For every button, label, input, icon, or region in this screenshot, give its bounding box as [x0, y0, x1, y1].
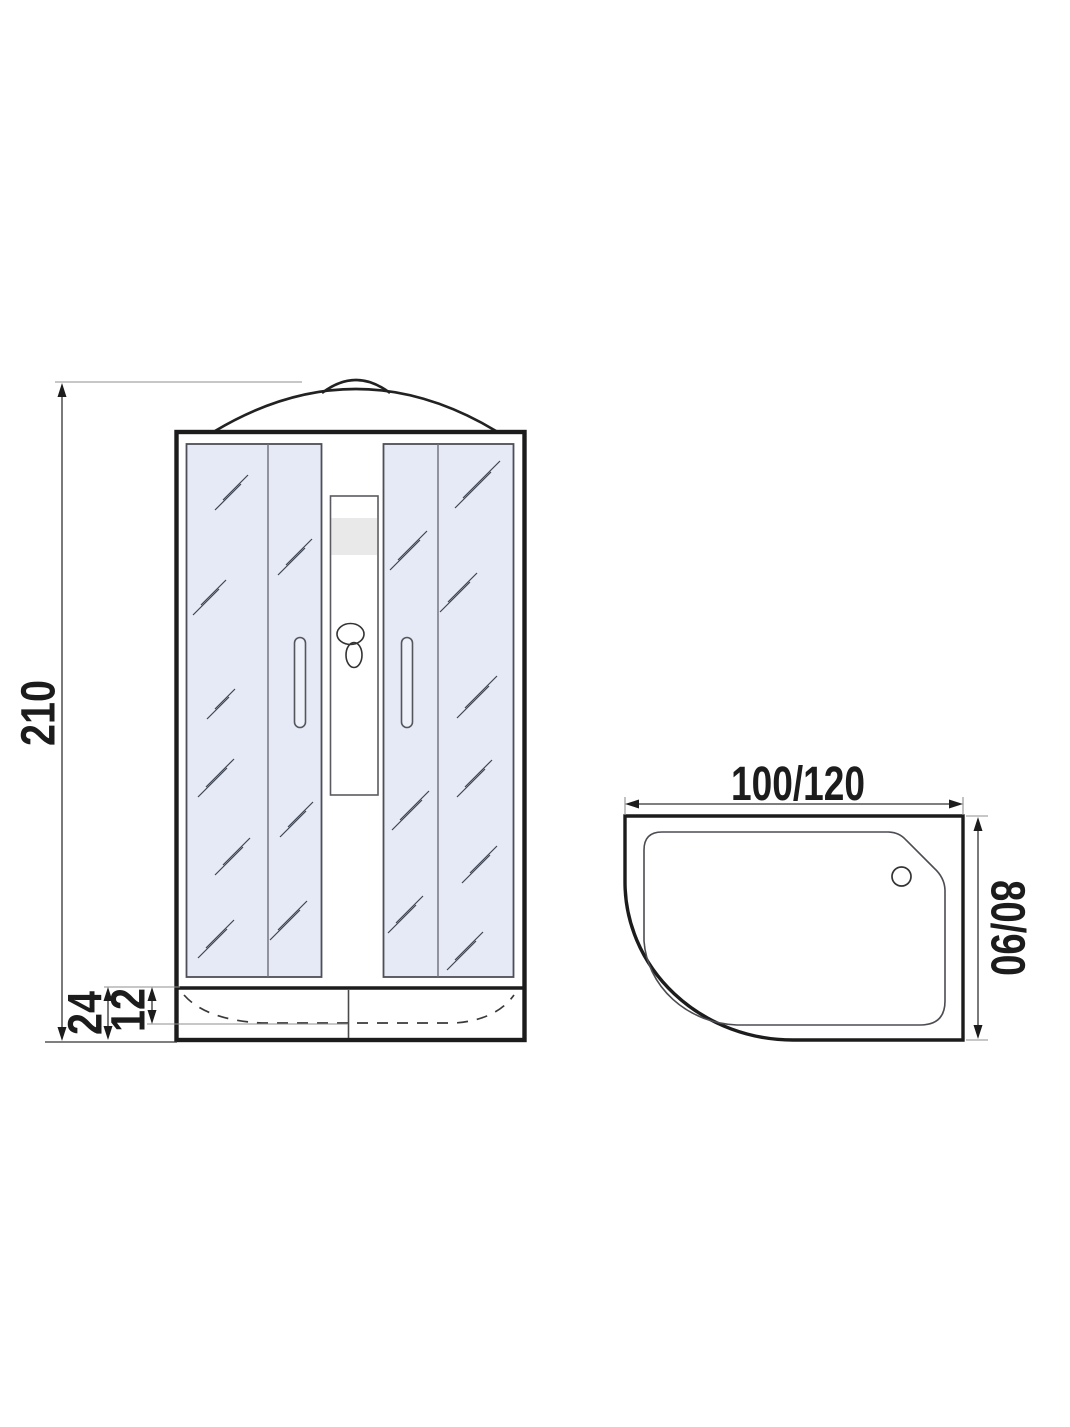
- dimension-tray-length: 80/90: [966, 816, 1034, 1040]
- front-view: [177, 380, 525, 1040]
- tray-depth-label: 12: [103, 988, 156, 1032]
- top-view: [625, 816, 963, 1040]
- control-column-panel: [332, 518, 378, 555]
- roof-dome-arc: [215, 389, 496, 431]
- drain-hole: [892, 867, 911, 886]
- dimension-tray-width: 100/120: [625, 758, 963, 815]
- tray-length-label: 80/90: [981, 880, 1034, 976]
- tray-width-label: 100/120: [731, 758, 865, 811]
- shower-cabin-technical-drawing: 210 24 12 100/120 80/90: [0, 0, 1070, 1427]
- tray-outline: [625, 816, 963, 1040]
- overall-height-label: 210: [13, 680, 66, 746]
- door-handle-right: [402, 638, 413, 728]
- door-handle-left: [295, 638, 306, 728]
